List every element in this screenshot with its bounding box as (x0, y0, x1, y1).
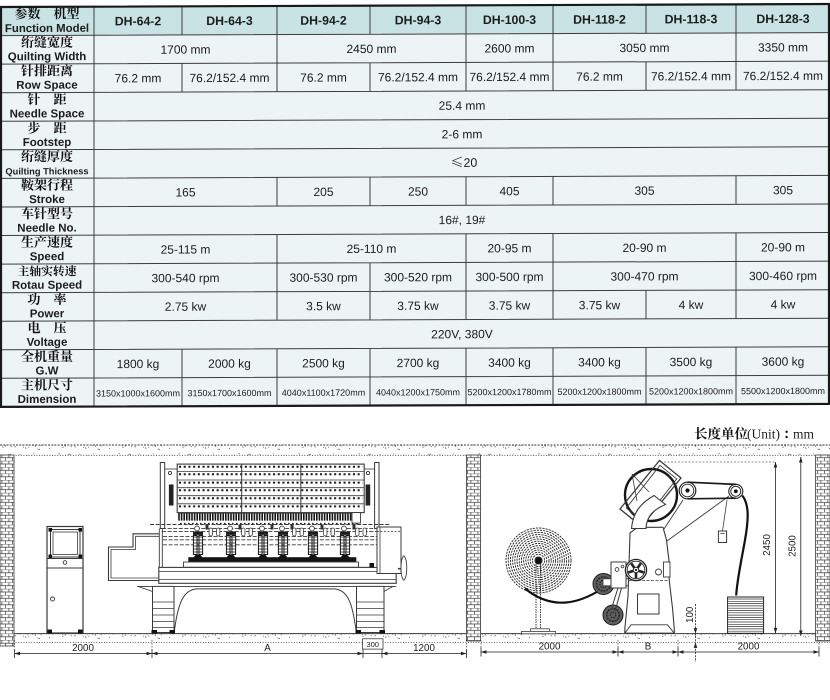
svg-text:DH-100-3: DH-100-3 (483, 13, 536, 27)
svg-text:76.2/152.4 mm: 76.2/152.4 mm (469, 70, 549, 84)
svg-text:3400 kg: 3400 kg (488, 356, 531, 370)
svg-text:5200x1200x1800mm: 5200x1200x1800mm (649, 386, 733, 396)
svg-text:Stroke: Stroke (29, 194, 65, 206)
svg-text:3150x1000x1600mm: 3150x1000x1600mm (96, 388, 180, 398)
svg-text:G.W: G.W (36, 365, 59, 377)
svg-text:Quilting Thickness: Quilting Thickness (5, 166, 88, 176)
svg-text:3050 mm: 3050 mm (619, 41, 669, 55)
svg-text:20-90 m: 20-90 m (622, 241, 666, 255)
svg-text:1800 kg: 1800 kg (117, 357, 160, 371)
svg-text:A: A (264, 643, 271, 654)
svg-text:3.5 kw: 3.5 kw (306, 299, 341, 313)
svg-text:5500x1200x1800mm: 5500x1200x1800mm (741, 386, 825, 396)
svg-text:4040x1200x1750mm: 4040x1200x1750mm (376, 387, 460, 397)
svg-text:20: 20 (464, 156, 478, 170)
svg-text:mm: mm (793, 427, 815, 442)
svg-text:DH-64-3: DH-64-3 (206, 14, 253, 28)
svg-text:3600 kg: 3600 kg (762, 355, 805, 369)
svg-text:2000: 2000 (72, 643, 94, 654)
svg-text:300-470 rpm: 300-470 rpm (610, 269, 678, 283)
svg-text:25-110 m: 25-110 m (347, 242, 397, 256)
svg-text:76.2/152.4 mm: 76.2/152.4 mm (378, 70, 458, 84)
svg-text:DH-128-3: DH-128-3 (756, 12, 809, 26)
svg-text:Power: Power (30, 308, 65, 320)
svg-text:100: 100 (685, 606, 696, 623)
svg-text:2000: 2000 (738, 642, 760, 653)
svg-text:3.75 kw: 3.75 kw (489, 298, 531, 312)
svg-text:76.2 mm: 76.2 mm (576, 70, 623, 84)
svg-text:2700 kg: 2700 kg (397, 356, 440, 370)
svg-text:Needle No.: Needle No. (17, 223, 76, 235)
svg-text:DH-118-3: DH-118-3 (665, 12, 718, 26)
svg-text:Row Space: Row Space (16, 80, 77, 92)
svg-text:2500 kg: 2500 kg (302, 356, 345, 370)
svg-text:DH-94-2: DH-94-2 (300, 14, 347, 28)
svg-text:305: 305 (773, 183, 793, 197)
svg-text:Rotau Speed: Rotau Speed (12, 280, 82, 292)
svg-text:205: 205 (313, 185, 333, 199)
svg-text:25.4 mm: 25.4 mm (439, 99, 486, 113)
svg-text:Voltage: Voltage (27, 337, 68, 349)
svg-text:405: 405 (499, 184, 519, 198)
svg-text:Speed: Speed (30, 251, 65, 263)
svg-text:76.2 mm: 76.2 mm (115, 71, 162, 85)
svg-text:3.75 kw: 3.75 kw (579, 298, 621, 312)
svg-text:Dimension: Dimension (18, 394, 77, 406)
svg-text:3150x1700x1600mm: 3150x1700x1600mm (187, 388, 271, 398)
svg-text:B: B (645, 642, 652, 653)
svg-text:5200x1200x1780mm: 5200x1200x1780mm (467, 387, 551, 397)
svg-text:5200x1200x1800mm: 5200x1200x1800mm (557, 387, 641, 397)
svg-text:300-540 rpm: 300-540 rpm (151, 271, 219, 285)
svg-text:25-115 m: 25-115 m (161, 242, 211, 256)
svg-text:2-6 mm: 2-6 mm (442, 127, 483, 141)
svg-text:2500: 2500 (787, 535, 798, 557)
svg-text:300-500 rpm: 300-500 rpm (475, 270, 543, 284)
svg-text:Function Model: Function Model (5, 23, 89, 35)
svg-text:2450 mm: 2450 mm (346, 42, 396, 56)
svg-text:4 kw: 4 kw (679, 298, 704, 312)
svg-text:DH-118-2: DH-118-2 (573, 13, 626, 27)
svg-text:DH-94-3: DH-94-3 (395, 13, 442, 27)
svg-text:76.2/152.4 mm: 76.2/152.4 mm (651, 69, 731, 83)
svg-text:20-90 m: 20-90 m (761, 240, 805, 254)
svg-text:300: 300 (366, 640, 379, 649)
svg-text:3.75 kw: 3.75 kw (397, 299, 439, 313)
svg-text:Quilting Width: Quilting Width (8, 51, 86, 63)
svg-text:76.2 mm: 76.2 mm (300, 71, 347, 85)
svg-text:1200: 1200 (413, 643, 435, 654)
svg-text:4 kw: 4 kw (771, 298, 796, 312)
svg-text:2000 kg: 2000 kg (208, 357, 251, 371)
svg-text:3500 kg: 3500 kg (670, 355, 713, 369)
svg-text:Needle Space: Needle Space (10, 108, 85, 120)
svg-text:2450: 2450 (762, 534, 773, 556)
svg-text:(Unit): (Unit) (747, 427, 780, 442)
svg-text:76.2/152.4 mm: 76.2/152.4 mm (743, 69, 823, 83)
svg-text:300-520 rpm: 300-520 rpm (384, 270, 452, 284)
svg-text:3350 mm: 3350 mm (758, 40, 808, 54)
svg-text:76.2/152.4 mm: 76.2/152.4 mm (189, 71, 269, 85)
svg-text:305: 305 (634, 184, 654, 198)
svg-text:20-95 m: 20-95 m (487, 241, 531, 255)
svg-text:16#, 19#: 16#, 19# (439, 213, 486, 227)
svg-text:2600 mm: 2600 mm (484, 41, 534, 55)
svg-text:2000: 2000 (539, 642, 561, 653)
svg-text:1700 mm: 1700 mm (160, 43, 210, 57)
svg-text:300-530 rpm: 300-530 rpm (289, 271, 357, 285)
svg-text:2.75 kw: 2.75 kw (165, 300, 207, 314)
svg-text:220V, 380V: 220V, 380V (431, 327, 493, 341)
svg-text:DH-64-2: DH-64-2 (115, 14, 162, 28)
svg-text:300-460 rpm: 300-460 rpm (749, 269, 817, 283)
svg-text:3400 kg: 3400 kg (578, 355, 621, 369)
svg-text:165: 165 (175, 185, 195, 199)
svg-text:4040x1100x1720mm: 4040x1100x1720mm (282, 388, 365, 398)
svg-text:Footstep: Footstep (23, 137, 72, 149)
svg-text:250: 250 (408, 185, 428, 199)
